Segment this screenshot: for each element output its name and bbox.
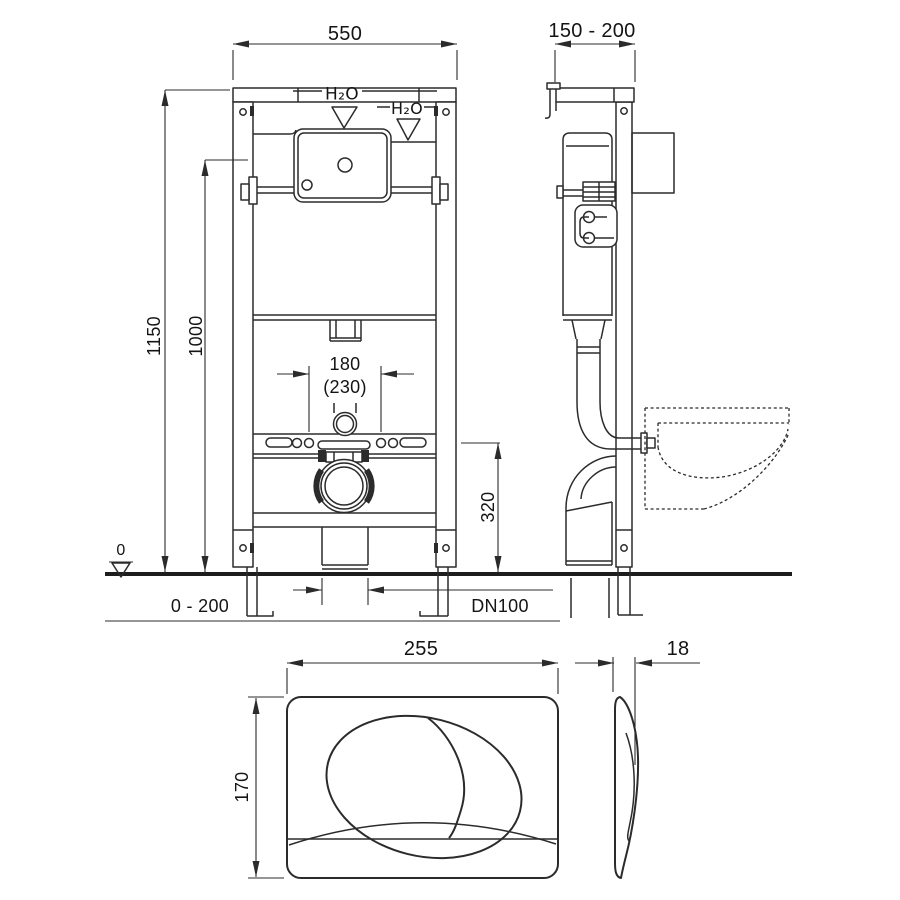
side-wall-box [632,133,674,193]
dim-150-200-label: 150 - 200 [548,21,635,41]
datum-0-label: 0 [116,543,125,559]
side-fill-valve [557,182,617,247]
flush-button-oval [311,696,537,878]
dim-550 [233,41,457,81]
dim-1000-label: 1000 [187,315,205,356]
dim-1150-label: 1150 [145,316,163,356]
dim-18-label: 18 [667,639,690,659]
side-flush-pipe [572,320,655,453]
flush-plate-front [287,696,558,878]
dim-180-label: 180 [330,355,361,373]
dim-0-200-label: 0 - 200 [171,597,229,615]
dim-255-label: 255 [404,639,438,659]
dim-550-label: 550 [328,24,362,44]
dim-230-label: (230) [323,378,367,396]
water-inlet-arrow-right [397,119,420,140]
dim-320-label: 320 [479,492,497,523]
water-inlet-arrow-center [332,107,357,128]
side-frame [545,83,643,615]
toilet-bowl-outline [645,408,789,509]
water-label-right: H₂O [391,101,423,117]
dim-150-200 [555,41,635,83]
front-drain-outlet [316,450,371,569]
cistern-access-box [241,129,448,204]
side-drain-bend [566,456,616,618]
front-frame [233,88,456,616]
installation-frame-drawing [0,0,900,900]
dn100-label: DN100 [471,597,529,615]
water-label-center: H₂O [325,87,359,104]
dim-170-label: 170 [233,772,251,803]
dim-255 [287,660,558,695]
technical-drawing-canvas: 550 150 - 200 H₂O H₂O 1150 1000 180 (230… [0,0,900,900]
bowl-mounting-bolt [641,433,647,453]
dim-170 [248,697,284,878]
flush-button-divider [428,718,464,838]
